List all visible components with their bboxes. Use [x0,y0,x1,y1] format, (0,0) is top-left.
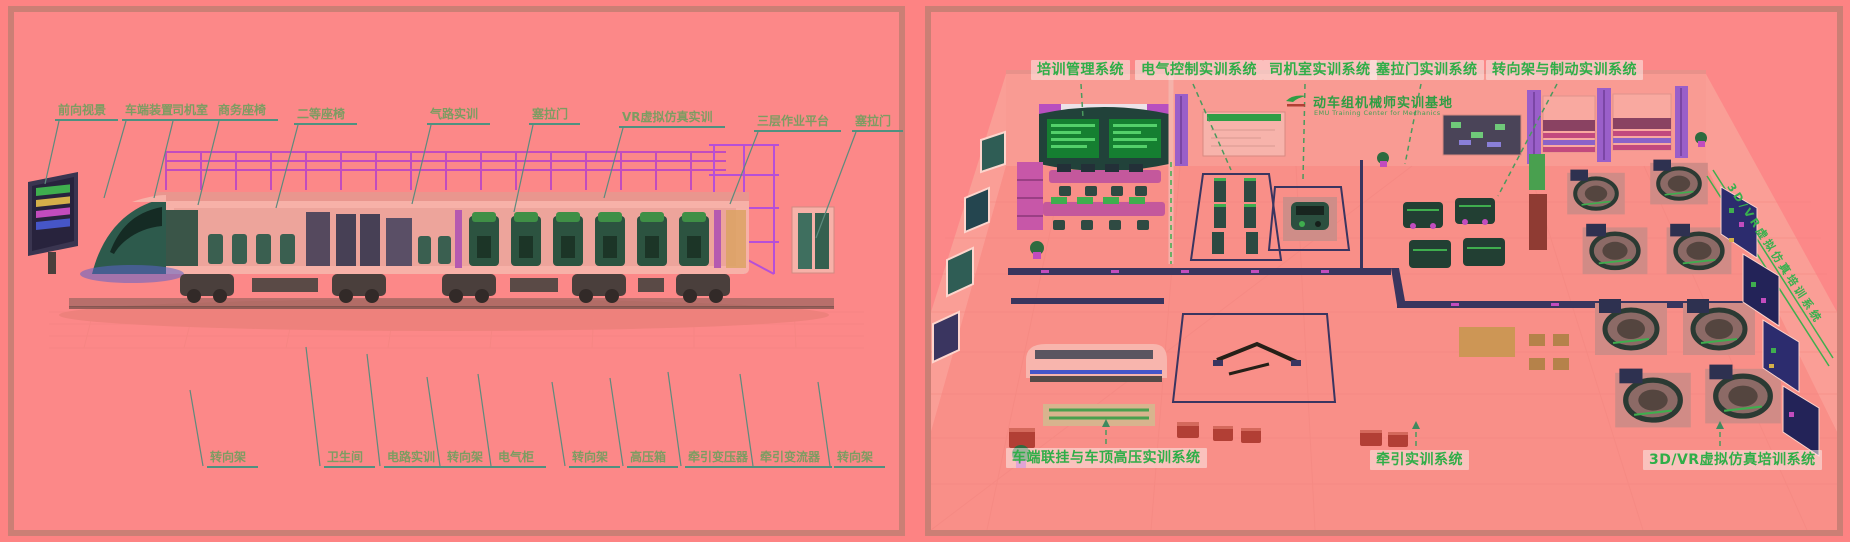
label-driver-cab: 司机室 [169,103,220,121]
label-second-class-seats: 二等座椅 [294,107,357,125]
label-electrical-cabinet: 电气柜 [495,450,546,468]
label-traction-converter: 牵引变流器 [757,450,832,468]
label-bogie-2: 转向架 [444,450,495,468]
label-electrical-control-system: 电气控制实训系统 [1135,60,1263,80]
label-front-view-scene: 前向视景 [55,103,118,121]
label-traction-transformer: 牵引变压器 [685,450,760,468]
left-panel-train-render: 前向视景 车端装置 司机室 商务座椅 二等座椅 气路实训 塞拉门 VR虚拟仿真实… [8,6,905,536]
label-vr-simulation: VR虚拟仿真实训 [619,110,725,128]
right-panel-facility-render: 动车组机械师实训基地 EMU Training Center for Mecha… [925,6,1843,536]
label-plug-door-2: 塞拉门 [852,114,903,132]
label-bogie-4: 转向架 [834,450,885,468]
page: { "left_panel": { "top_labels": ["前向视景",… [0,0,1850,542]
label-driver-cab-system: 司机室实训系统 [1263,60,1377,80]
brand-logo-icon [1283,92,1309,110]
label-business-seats: 商务座椅 [215,103,278,121]
label-bogie-3: 转向架 [569,450,620,468]
label-bogie-1: 转向架 [207,450,258,468]
label-toilet: 卫生间 [324,450,375,468]
label-bogie-brake-system: 转向架与制动实训系统 [1486,60,1643,80]
label-traction-system: 牵引实训系统 [1370,450,1469,470]
label-pneumatic-training: 气路实训 [427,107,490,125]
label-plug-door: 塞拉门 [529,107,580,125]
label-circuit-training: 电路实训 [384,450,447,468]
label-vr-training-system: 3D/VR虚拟仿真培训系统 [1643,450,1822,470]
label-three-level-platform: 三层作业平台 [754,114,841,132]
label-training-management-system: 培训管理系统 [1031,60,1130,80]
label-plug-door-system: 塞拉门实训系统 [1370,60,1484,80]
wall-subtitle: EMU Training Center for Mechanics [1314,109,1441,117]
label-coupling-roof-hv-system: 车端联挂与车顶高压实训系统 [1006,448,1207,468]
label-high-voltage-box: 高压箱 [627,450,678,468]
